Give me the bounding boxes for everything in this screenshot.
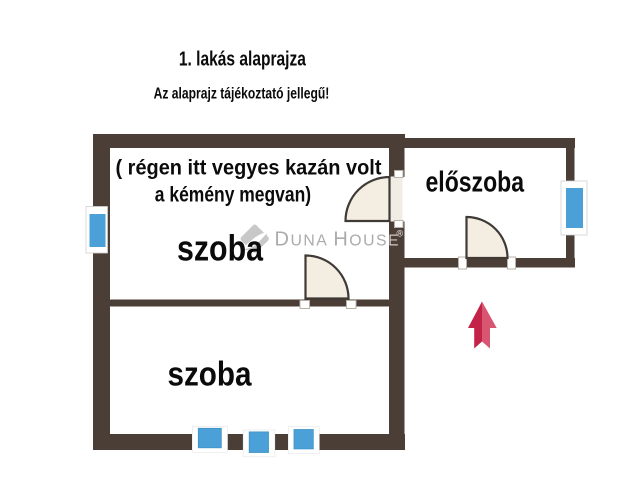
svg-text:szoba: szoba (177, 228, 264, 269)
svg-text:DUNA HOUSE: DUNA HOUSE (275, 229, 401, 251)
svg-text:1. lakás alaprajza: 1. lakás alaprajza (179, 48, 306, 71)
svg-text:előszoba: előszoba (426, 167, 525, 199)
svg-text:®: ® (397, 229, 404, 239)
svg-text:a kémény megvan): a kémény megvan) (155, 183, 311, 207)
svg-text:szoba: szoba (168, 356, 253, 394)
svg-text:( régen itt vegyes kazán volt: ( régen itt vegyes kazán volt (116, 157, 382, 180)
svg-text:Az alaprajz tájékoztató jelleg: Az alaprajz tájékoztató jellegű! (154, 85, 330, 102)
